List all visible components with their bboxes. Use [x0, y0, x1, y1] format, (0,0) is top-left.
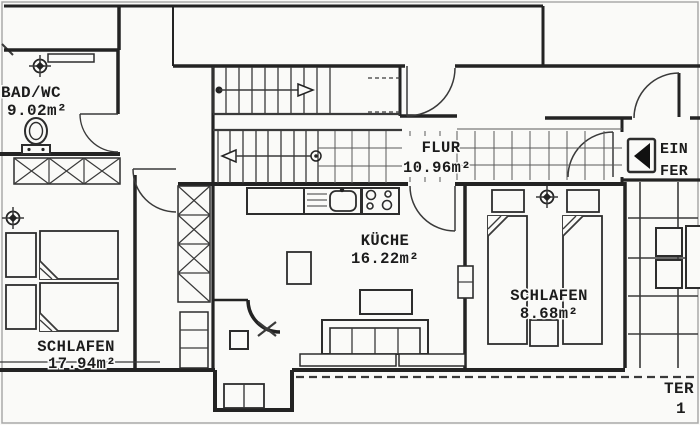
x-marker [258, 322, 276, 336]
entrance-label-line2: FER [660, 163, 688, 180]
lamp-icon [536, 186, 558, 208]
wardrobe [14, 158, 120, 184]
room-label-schlafen-gross: SCHLAFEN [37, 338, 115, 356]
terrace-label-line1: TER [664, 380, 694, 398]
table [360, 290, 412, 314]
stool [230, 331, 248, 349]
sink-icon [304, 188, 361, 214]
table [686, 226, 700, 288]
door-direction-icon [628, 139, 655, 172]
cabinet [287, 252, 311, 284]
room-area-schlafen-gross: 17.94m² [48, 355, 116, 373]
stove-icon [362, 188, 399, 214]
door-jamb [458, 266, 473, 298]
room-label-flur: FLUR [422, 139, 461, 157]
toilet-icon [22, 118, 50, 154]
floor-plan-drawing: BAD/WC 9.02m² FLUR 10.96m² KÜCHE 16.22m²… [0, 0, 700, 425]
room-label-kueche: KÜCHE [361, 232, 410, 250]
floor-plan-page: BAD/WC 9.02m² FLUR 10.96m² KÜCHE 16.22m²… [0, 0, 700, 425]
hall-wardrobe [178, 186, 210, 368]
room-label-bad-wc: BAD/WC [1, 84, 61, 102]
nightstand [530, 320, 558, 346]
room-area-bad-wc: 9.02m² [7, 102, 67, 120]
window-sill [399, 354, 465, 366]
room-kueche [230, 188, 473, 366]
entrance-area [628, 139, 655, 172]
room-area-flur: 10.96m² [403, 159, 471, 177]
shelf [48, 54, 94, 62]
stair-up-arrow [216, 84, 314, 96]
adjacent-room-fragment [628, 182, 700, 368]
room-area-kueche: 16.22m² [351, 250, 419, 268]
chair [656, 260, 682, 288]
lamp-icon [2, 207, 24, 229]
room-schlafen-gross [2, 158, 120, 331]
bed [6, 231, 118, 279]
terrace-label-line2: 1 [676, 400, 686, 418]
room-label-schlafen-klein: SCHLAFEN [510, 287, 588, 305]
window-sill [300, 354, 396, 366]
room-area-schlafen-klein: 8.68m² [520, 305, 578, 323]
sofa [322, 320, 428, 354]
annex [215, 370, 292, 410]
bed [6, 283, 118, 331]
chair [656, 228, 682, 256]
entrance-label-line1: EIN [660, 141, 688, 158]
counter [247, 188, 304, 214]
